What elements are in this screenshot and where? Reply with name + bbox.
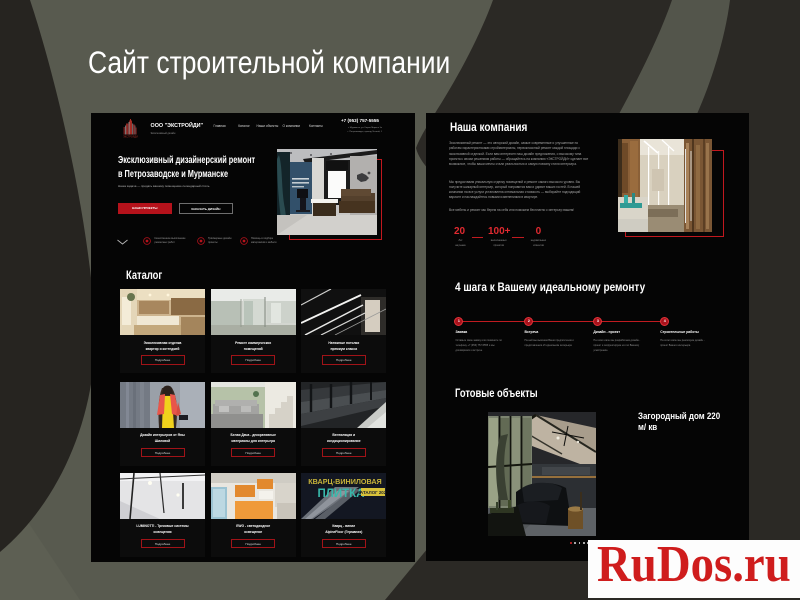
svg-text:КАТАЛОГ 2020: КАТАЛОГ 2020: [358, 490, 387, 495]
svg-text:ЭКСТРОЙДИ: ЭКСТРОЙДИ: [123, 135, 138, 138]
svg-text:КВАРЦ-ВИНИЛОВАЯ: КВАРЦ-ВИНИЛОВАЯ: [309, 477, 382, 486]
